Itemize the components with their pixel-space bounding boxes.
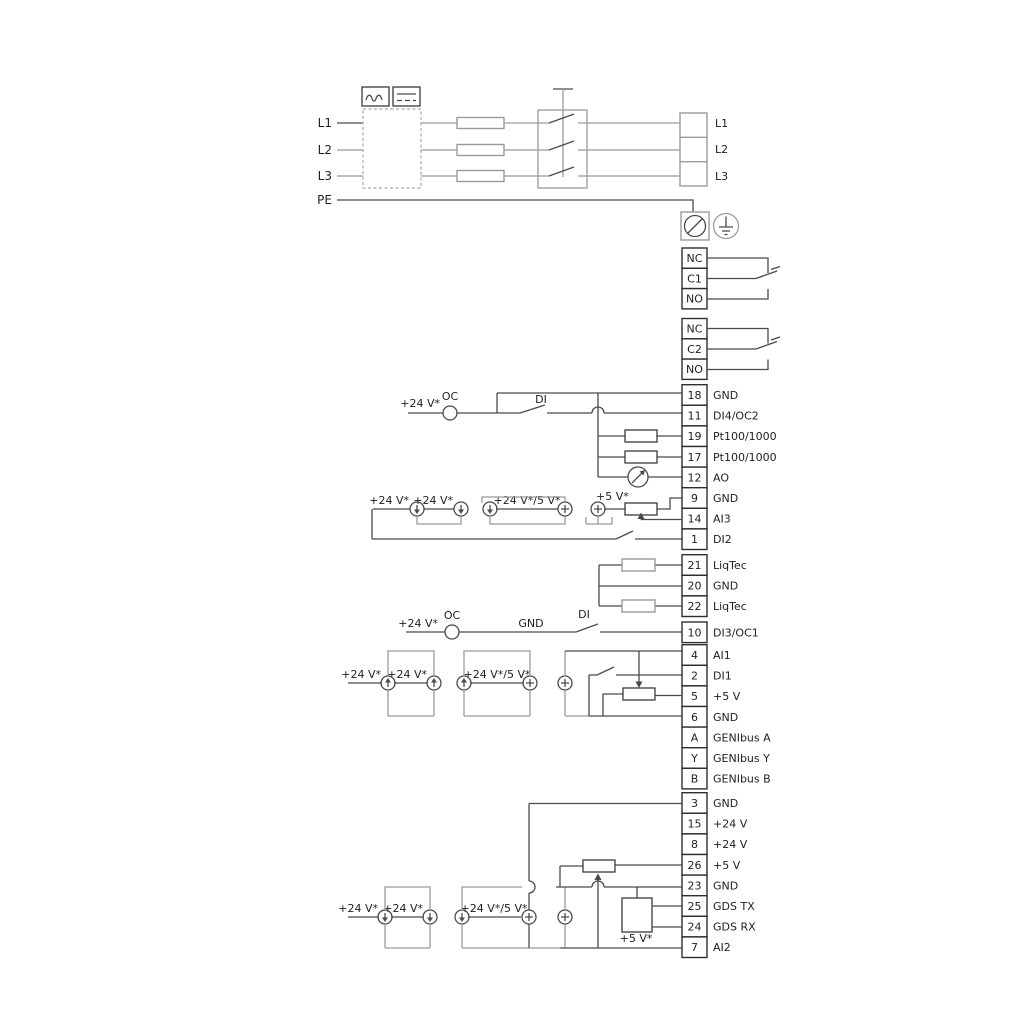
resistor-icon	[622, 559, 655, 571]
terminal-name: GND	[713, 580, 738, 593]
dc-icon	[393, 87, 420, 106]
rfi-filter-box	[363, 109, 421, 188]
output-label-l3: L3	[715, 170, 728, 183]
relay1-contact	[707, 258, 780, 299]
terminal-number: 10	[688, 626, 702, 639]
open-collector-icon	[443, 406, 457, 420]
ai3-section: +24 V* +24 V* +24 V*/5 V* +5 V*	[369, 490, 682, 539]
terminal-number: 6	[691, 711, 698, 724]
terminal-name: GND	[713, 492, 738, 505]
relay2-nc: NC	[687, 323, 703, 336]
terminal-name: +5 V	[713, 690, 741, 703]
terminal-number: 15	[688, 818, 702, 831]
wires-switch-to-block	[578, 123, 680, 176]
fuse-icon	[457, 171, 504, 182]
terminal-number: 25	[688, 900, 702, 913]
terminal-number: Y	[690, 752, 698, 765]
terminal-number: 7	[691, 941, 698, 954]
wiring-diagram-svg: L1 L2 L3 PE L1 L2 L3	[0, 0, 1024, 1024]
terminal-name: DI1	[713, 670, 732, 683]
wire-pe	[337, 200, 693, 212]
terminal-name: AI1	[713, 649, 731, 662]
ai2-24v-label-b: +24 V*	[383, 902, 423, 915]
terminal-name: GND	[713, 389, 738, 402]
switch-blades	[549, 114, 574, 176]
di4-wire-to-terminal	[547, 407, 682, 413]
terminal-number: 18	[688, 389, 702, 402]
di2-switch-contact	[616, 531, 633, 539]
ai1-24v-5v-label: +24 V*/5 V*	[464, 668, 531, 681]
terminal-number: 5	[691, 690, 698, 703]
liqtec-section	[599, 559, 682, 612]
terminal-name: +24 V	[713, 818, 748, 831]
relay2-no: NO	[686, 363, 703, 376]
terminal-name: GND	[713, 797, 738, 810]
dc-source-arrow-icon	[483, 502, 497, 516]
di4-24v-label: +24 V*	[400, 397, 440, 410]
terminal-number: 8	[691, 838, 698, 851]
gnd3-vertical	[529, 804, 535, 949]
pt100-sensor-icon	[625, 451, 657, 463]
terminal-number: 1	[691, 533, 698, 546]
terminal-name: DI2	[713, 533, 732, 546]
input-label-l2: L2	[318, 143, 332, 157]
di3-di-label: DI	[578, 608, 590, 621]
di1-switch-contact	[597, 667, 614, 675]
di4-wires	[457, 393, 682, 413]
output-label-l2: L2	[715, 143, 728, 156]
ai3-24v-label-b: +24 V*	[413, 494, 453, 507]
pt100-sensor-icon	[625, 430, 657, 442]
terminal-name: GND	[713, 711, 738, 724]
relay2-contact	[707, 329, 780, 370]
di3-24v-label: +24 V*	[398, 617, 438, 630]
ai2-section: +24 V* +24 V* +24 V*/5 V* +5 V*	[338, 804, 682, 949]
terminal-name: LiqTec	[713, 559, 747, 572]
relay1-c1: C1	[687, 272, 702, 285]
power-input-section: L1 L2 L3 PE L1 L2 L3	[317, 87, 738, 240]
terminal-number: 24	[688, 921, 702, 934]
terminal-number: B	[691, 773, 699, 786]
ai2-24v-5v-label: +24 V*/5 V*	[461, 902, 528, 915]
terminal-strips: 18GND11DI4/OC219Pt100/100017Pt100/100012…	[682, 385, 777, 958]
terminal-name: +5 V	[713, 859, 741, 872]
terminal-name: DI4/OC2	[713, 410, 759, 423]
di3-switch-contact	[576, 624, 598, 632]
dc-source-plus-icon	[558, 910, 572, 924]
potentiometer-icon	[583, 860, 615, 872]
terminal-number: 2	[691, 670, 698, 683]
fuse-icon	[457, 145, 504, 156]
terminal-number: 12	[688, 471, 702, 484]
terminal-number: 9	[691, 492, 698, 505]
switch-entry-stubs	[538, 123, 549, 176]
di4-di-label: DI	[535, 393, 547, 406]
terminal-number: 26	[688, 859, 702, 872]
relay1-section: NC C1 NO	[682, 248, 780, 309]
terminal-name: GDS TX	[713, 900, 755, 913]
terminal-number: 17	[688, 451, 702, 464]
di4-section: +24 V* OC DI	[400, 390, 682, 487]
terminal-name: GENIbus Y	[713, 752, 770, 765]
terminal-number: 19	[688, 430, 702, 443]
dc-source-plus-icon	[558, 676, 572, 690]
wiring-diagram: L1 L2 L3 PE L1 L2 L3	[0, 0, 1024, 1024]
ai3-24v-5v-label: +24 V*/5 V*	[494, 494, 561, 507]
dc-source-arrow-icon	[454, 502, 468, 516]
gds-5v-label: +5 V*	[620, 932, 653, 945]
di4-switch-contact	[520, 405, 545, 413]
terminal-name: GENIbus A	[713, 731, 771, 744]
ai3-24v-label-a: +24 V*	[369, 494, 409, 507]
di3-oc-label: OC	[444, 609, 461, 622]
relay2-c2: C2	[687, 343, 702, 356]
terminal-number: 4	[691, 649, 698, 662]
terminal-number: 11	[688, 410, 702, 423]
fuse-icon	[457, 118, 504, 129]
terminal-name: Pt100/1000	[713, 451, 777, 464]
terminal-name: LiqTec	[713, 600, 747, 613]
terminal-name: DI3/OC1	[713, 626, 759, 639]
terminal-name: Pt100/1000	[713, 430, 777, 443]
relay1-no: NO	[686, 293, 703, 306]
relay2-section: NC C2 NO	[682, 319, 780, 380]
input-label-l3: L3	[318, 169, 332, 183]
resistor-icon	[622, 600, 655, 612]
di4-oc-label: OC	[442, 390, 459, 403]
input-label-pe: PE	[317, 193, 332, 207]
di3-gnd-label: GND	[518, 617, 543, 630]
wire-l2-l3	[337, 150, 363, 176]
dc-source-arrow-icon	[427, 676, 441, 690]
terminal-name: AI2	[713, 941, 731, 954]
ai1-section: +24 V* +24 V* +24 V*/5 V*	[341, 651, 682, 716]
ai2-24v-label-a: +24 V*	[338, 902, 378, 915]
terminal-number: 23	[688, 879, 702, 892]
ai3-pot-right-lead	[657, 498, 682, 509]
ai3-5v-label: +5 V*	[596, 490, 629, 503]
terminal-number: 21	[688, 559, 702, 572]
earth-ground-glyph	[719, 217, 733, 235]
dc-source-plus-icon	[522, 910, 536, 924]
terminal-number: 20	[688, 580, 702, 593]
dc-source-plus-icon	[558, 502, 572, 516]
terminal-number: A	[691, 731, 699, 744]
terminal-name: GDS RX	[713, 921, 756, 934]
input-label-l1: L1	[318, 116, 332, 130]
terminal-name: AI3	[713, 513, 731, 526]
dc-source-arrow-icon	[381, 676, 395, 690]
power-terminal-block	[680, 113, 707, 186]
terminal-name: GENIbus B	[713, 773, 771, 786]
potentiometer-icon	[623, 688, 655, 700]
dc-source-plus-icon	[591, 502, 605, 516]
open-collector-icon	[445, 625, 459, 639]
gnd23-wire	[556, 881, 682, 887]
terminal-number: 14	[688, 513, 702, 526]
terminal-name: AO	[713, 471, 729, 484]
dc-source-arrow-icon	[423, 910, 437, 924]
dc-source-arrow-icon	[457, 676, 471, 690]
ai1-24v-label-a: +24 V*	[341, 668, 381, 681]
ai1-wiper-arrow	[636, 682, 643, 689]
ai2-wiper-arrow	[595, 874, 602, 881]
terminal-name: +24 V	[713, 838, 748, 851]
terminal-number: 3	[691, 797, 698, 810]
terminal-number: 22	[688, 600, 702, 613]
ac-icon	[362, 87, 389, 106]
output-label-l1: L1	[715, 117, 728, 130]
terminal-name: GND	[713, 879, 738, 892]
gds-sensor-icon	[622, 898, 652, 932]
relay1-nc: NC	[687, 252, 703, 265]
ai2-pot-leads	[560, 865, 682, 887]
